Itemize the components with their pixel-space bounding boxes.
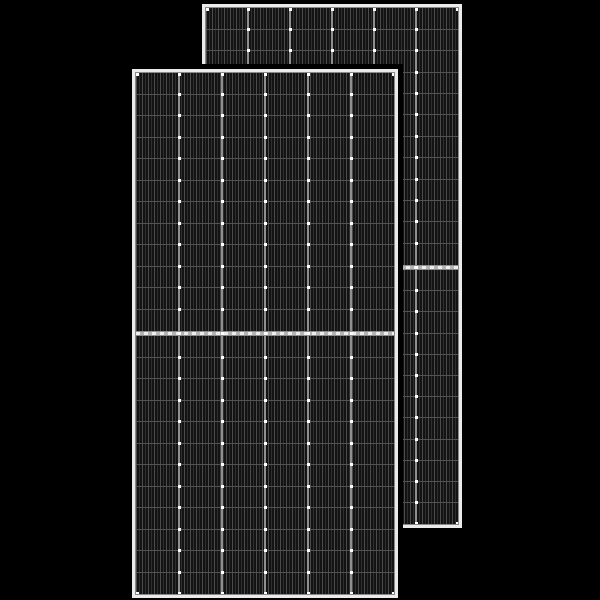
solder-dot: [350, 377, 353, 380]
solder-dot: [178, 506, 181, 509]
solder-dot: [264, 356, 267, 359]
solder-dot: [178, 93, 181, 96]
solder-dot: [392, 73, 395, 76]
solder-dot: [221, 332, 224, 335]
solder-dot: [415, 71, 418, 74]
solder-dot: [221, 286, 224, 289]
solder-dot: [221, 356, 224, 359]
solder-dot: [289, 8, 292, 11]
solder-dot: [350, 157, 353, 160]
solder-dot: [264, 93, 267, 96]
solder-dot: [350, 592, 353, 595]
solder-dot: [264, 332, 267, 335]
solder-dot: [350, 114, 353, 117]
solder-dot: [221, 549, 224, 552]
solder-dot: [415, 8, 418, 11]
solder-dot: [264, 286, 267, 289]
solder-dot: [415, 266, 418, 269]
solder-dot: [178, 528, 181, 531]
solder-dot: [307, 286, 310, 289]
solder-dot: [415, 289, 418, 292]
solder-dot: [331, 8, 334, 11]
solder-dot: [264, 485, 267, 488]
solder-dot: [350, 136, 353, 139]
solder-dot: [331, 49, 334, 52]
solder-dot: [307, 442, 310, 445]
solder-dot: [350, 243, 353, 246]
solder-dot: [221, 222, 224, 225]
solder-dot: [350, 356, 353, 359]
solder-dot: [350, 506, 353, 509]
solder-dot: [307, 243, 310, 246]
solder-dot: [350, 463, 353, 466]
solder-dot: [206, 8, 209, 11]
solder-dot: [178, 332, 181, 335]
solder-dot: [307, 592, 310, 595]
solder-dot: [307, 93, 310, 96]
solder-dot: [264, 222, 267, 225]
solder-dot: [350, 549, 353, 552]
solder-dot: [307, 265, 310, 268]
solder-dot: [456, 8, 459, 11]
solder-dot: [373, 49, 376, 52]
solder-dot: [415, 242, 418, 245]
solar-panel-front: [132, 69, 398, 598]
scene: [0, 0, 600, 600]
solder-dot: [373, 8, 376, 11]
solder-dot: [331, 28, 334, 31]
solder-dot: [350, 93, 353, 96]
solder-dot: [178, 265, 181, 268]
solder-dot: [221, 114, 224, 117]
solder-dot: [415, 395, 418, 398]
solder-dot: [178, 73, 181, 76]
solder-dot: [178, 549, 181, 552]
solder-dot: [221, 592, 224, 595]
solder-dot: [415, 480, 418, 483]
solder-dot: [350, 265, 353, 268]
solder-dot: [350, 179, 353, 182]
solder-dot: [221, 179, 224, 182]
solder-dot: [307, 179, 310, 182]
solder-dot: [289, 28, 292, 31]
solder-dot: [415, 310, 418, 313]
solder-dot: [307, 506, 310, 509]
solder-dot: [373, 28, 376, 31]
solder-dot: [392, 592, 395, 595]
solder-dot: [415, 332, 418, 335]
solder-dot: [415, 353, 418, 356]
solder-dot: [415, 92, 418, 95]
solder-dot: [264, 179, 267, 182]
solder-dot: [178, 286, 181, 289]
solder-dot: [289, 49, 292, 52]
solder-dot: [307, 399, 310, 402]
solder-dot: [221, 528, 224, 531]
solder-dot: [221, 506, 224, 509]
solder-dot: [221, 463, 224, 466]
solder-dot: [221, 93, 224, 96]
solder-dot: [350, 222, 353, 225]
solder-dot: [307, 571, 310, 574]
solder-dot: [350, 442, 353, 445]
solder-dot: [178, 308, 181, 311]
solder-dot: [221, 308, 224, 311]
solder-dot: [307, 549, 310, 552]
solder-dot: [415, 438, 418, 441]
solder-dot: [307, 200, 310, 203]
solder-dot: [307, 136, 310, 139]
solder-dot: [264, 399, 267, 402]
solder-dot: [307, 377, 310, 380]
solder-dot: [307, 157, 310, 160]
cell-grid: [136, 73, 394, 594]
solder-dot: [415, 220, 418, 223]
solder-dot: [178, 592, 181, 595]
solder-dot: [415, 522, 418, 525]
solder-dot: [415, 156, 418, 159]
solder-dot: [221, 377, 224, 380]
solder-dot: [221, 442, 224, 445]
solder-dot: [178, 200, 181, 203]
solder-dot: [264, 420, 267, 423]
solder-dot: [415, 135, 418, 138]
solder-dot: [307, 222, 310, 225]
solder-dot: [178, 243, 181, 246]
solder-dot: [307, 528, 310, 531]
solder-dot: [415, 416, 418, 419]
solder-dot: [264, 592, 267, 595]
solder-dot: [307, 308, 310, 311]
solder-dot: [221, 157, 224, 160]
solder-dot: [264, 114, 267, 117]
solder-dot: [264, 528, 267, 531]
solder-dot: [264, 506, 267, 509]
solder-dot: [264, 377, 267, 380]
solder-dot: [307, 114, 310, 117]
solder-dot: [307, 332, 310, 335]
solder-dot: [178, 377, 181, 380]
solder-dot: [350, 332, 353, 335]
solder-dot: [415, 501, 418, 504]
solder-dot: [415, 113, 418, 116]
solder-dot: [178, 157, 181, 160]
solder-dot: [350, 420, 353, 423]
solder-dot: [307, 73, 310, 76]
solder-dot: [178, 179, 181, 182]
solder-dot: [456, 522, 459, 525]
solder-dot: [264, 136, 267, 139]
solder-dot: [178, 399, 181, 402]
solder-dot: [350, 73, 353, 76]
solder-dot: [350, 485, 353, 488]
solder-dot: [264, 73, 267, 76]
solder-dot: [178, 571, 181, 574]
solder-dot: [178, 136, 181, 139]
solder-dot: [350, 528, 353, 531]
solder-dot: [247, 49, 250, 52]
solder-dot: [221, 420, 224, 423]
solder-dot: [415, 178, 418, 181]
solder-dot: [264, 243, 267, 246]
solder-dot: [350, 286, 353, 289]
solder-dot: [264, 308, 267, 311]
solder-dot: [350, 571, 353, 574]
solder-dot: [415, 28, 418, 31]
solder-dot: [264, 442, 267, 445]
solder-dot: [136, 73, 139, 76]
solder-dot: [178, 485, 181, 488]
solder-dot: [415, 459, 418, 462]
solder-dot: [307, 420, 310, 423]
solder-dot: [307, 356, 310, 359]
solder-dot: [350, 308, 353, 311]
solder-dot: [415, 374, 418, 377]
solder-dot: [264, 200, 267, 203]
solder-dot: [350, 399, 353, 402]
solder-dot: [264, 463, 267, 466]
solder-dot: [178, 114, 181, 117]
solder-dot: [247, 28, 250, 31]
solder-dot: [178, 222, 181, 225]
solder-dot: [136, 592, 139, 595]
solder-dot: [178, 356, 181, 359]
solder-dot: [221, 571, 224, 574]
solder-dot: [221, 200, 224, 203]
solder-dot: [178, 463, 181, 466]
solder-dot: [221, 136, 224, 139]
solder-dot: [178, 420, 181, 423]
solder-dot: [264, 157, 267, 160]
solder-dot: [307, 463, 310, 466]
solder-dot: [415, 49, 418, 52]
solder-dot: [307, 485, 310, 488]
solder-dot: [350, 200, 353, 203]
solder-dot: [221, 243, 224, 246]
solder-dot: [247, 8, 250, 11]
solder-dot: [221, 399, 224, 402]
solder-dot: [264, 265, 267, 268]
solder-dot: [221, 265, 224, 268]
solder-dot: [264, 549, 267, 552]
solder-dot: [264, 571, 267, 574]
solder-dot: [178, 442, 181, 445]
solder-dot: [221, 485, 224, 488]
solder-dot: [221, 73, 224, 76]
solder-dot: [415, 199, 418, 202]
